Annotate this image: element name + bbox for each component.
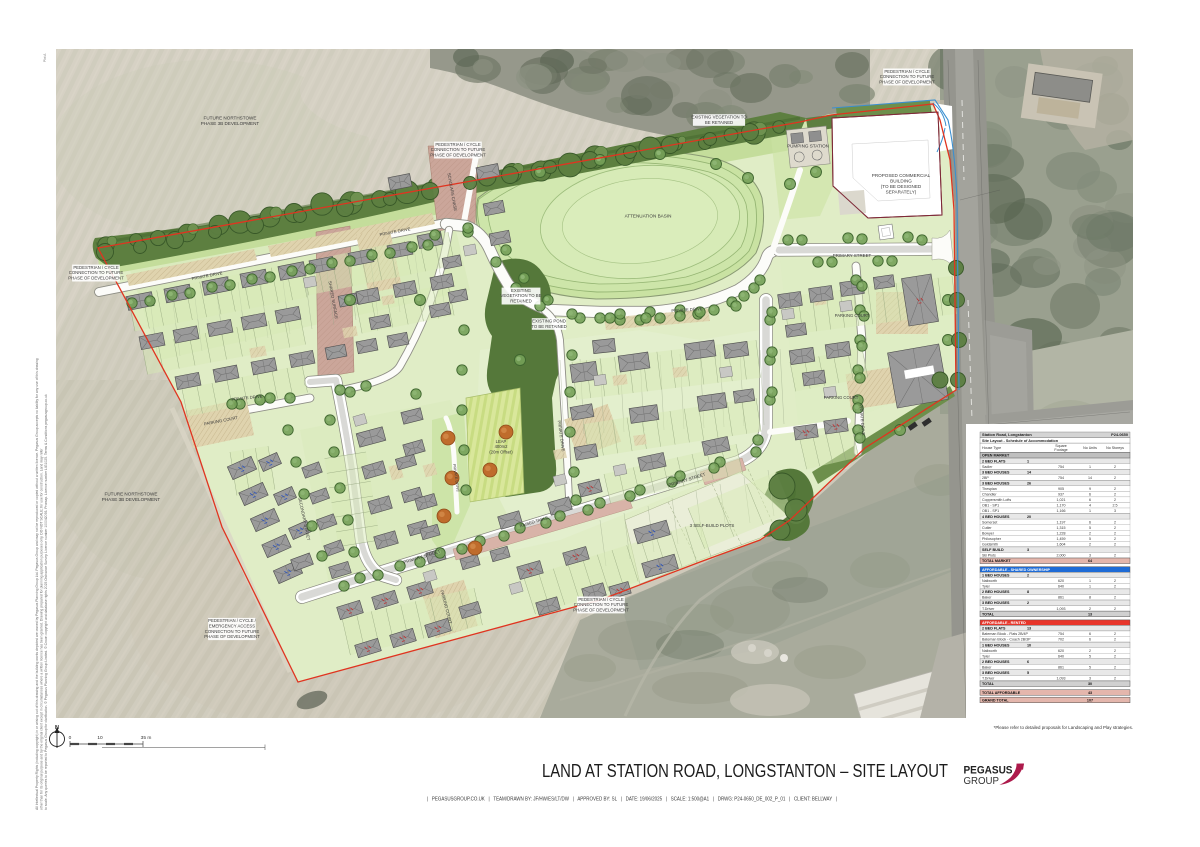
svg-text:GRAND TOTAL: GRAND TOTAL xyxy=(982,698,1009,702)
svg-text:CONNECTION TO FUTURE: CONNECTION TO FUTURE xyxy=(431,147,486,152)
svg-text:2: 2 xyxy=(1114,585,1116,589)
svg-text:RETAINED: RETAINED xyxy=(510,299,531,304)
svg-text:House Type: House Type xyxy=(982,446,1001,450)
svg-text:4: 4 xyxy=(1089,504,1091,508)
svg-text:PARKING COURT: PARKING COURT xyxy=(835,313,870,318)
svg-text:PRIMARY STREET: PRIMARY STREET xyxy=(833,253,872,258)
svg-text:*Please refer to detailed prop: *Please refer to detailed proposals for … xyxy=(994,725,1133,730)
svg-text:2: 2 xyxy=(1114,596,1116,600)
svg-text:Bateman Block - Flats 2B/4P: Bateman Block - Flats 2B/4P xyxy=(982,632,1029,636)
svg-text:PHASE OF DEVELOPMENT: PHASE OF DEVELOPMENT xyxy=(68,276,124,281)
svg-text:Site Layout - Schedule of Acco: Site Layout - Schedule of Accommodation xyxy=(982,439,1059,443)
svg-text:Tyler: Tyler xyxy=(982,585,991,589)
svg-text:N: N xyxy=(55,725,59,731)
svg-text:PEDESTRIAN / CYCLE /: PEDESTRIAN / CYCLE / xyxy=(208,618,257,623)
svg-text:2: 2 xyxy=(1114,666,1116,670)
svg-text:6: 6 xyxy=(1027,660,1029,664)
svg-text:PEDESTRIAN / CYCLE: PEDESTRIAN / CYCLE xyxy=(435,142,481,147)
svg-text:ATTENUATION BASIN: ATTENUATION BASIN xyxy=(625,213,672,218)
svg-text:2: 2 xyxy=(1114,487,1116,491)
svg-text:PHASE 3B DEVELOPMENT: PHASE 3B DEVELOPMENT xyxy=(201,121,260,126)
svg-text:Plot A: Plot A xyxy=(43,53,47,62)
svg-text:107: 107 xyxy=(1087,698,1093,702)
svg-text:1,604: 1,604 xyxy=(1057,543,1066,547)
svg-text:1: 1 xyxy=(1027,459,1029,463)
svg-text:EXISTING VEGETATION TO: EXISTING VEGETATION TO xyxy=(691,115,747,120)
svg-text:PHASE OF DEVELOPMENT: PHASE OF DEVELOPMENT xyxy=(573,608,629,613)
svg-text:6: 6 xyxy=(1089,520,1091,524)
svg-text:2: 2 xyxy=(1114,649,1116,653)
svg-text:Baker: Baker xyxy=(982,666,992,670)
svg-text:Cutler: Cutler xyxy=(982,526,992,530)
svg-text:13: 13 xyxy=(1088,612,1092,616)
svg-text:905: 905 xyxy=(1058,487,1064,491)
svg-text:PUMPING STATION: PUMPING STATION xyxy=(787,143,829,148)
svg-text:TO BE RETAINED: TO BE RETAINED xyxy=(531,324,566,329)
svg-text:2: 2 xyxy=(1114,531,1116,535)
svg-text:2: 2 xyxy=(1114,537,1116,541)
svg-text:| PEGASUSGROUP.CO.UK | T: | PEGASUSGROUP.CO.UK | TEAM/DRAWN BY: JF… xyxy=(427,797,837,803)
svg-text:8: 8 xyxy=(1027,590,1029,594)
svg-text:PHASE OF DEVELOPMENT: PHASE OF DEVELOPMENT xyxy=(879,80,935,85)
svg-text:2: 2 xyxy=(1114,654,1116,658)
svg-text:OB1 - SP1: OB1 - SP1 xyxy=(982,509,999,513)
svg-text:CONNECTION TO FUTURE: CONNECTION TO FUTURE xyxy=(69,270,124,275)
svg-text:2: 2 xyxy=(1114,465,1116,469)
svg-text:3 BED HOUSES: 3 BED HOUSES xyxy=(982,671,1010,675)
svg-text:2: 2 xyxy=(1114,493,1116,497)
svg-text:All Intellectual Property Righ: All Intellectual Property Rights (includ… xyxy=(35,358,39,810)
svg-text:PEDESTRIAN / CYCLE: PEDESTRIAN / CYCLE xyxy=(73,265,119,270)
svg-text:5: 5 xyxy=(1089,666,1091,670)
svg-text:2: 2 xyxy=(1114,638,1116,642)
svg-text:2BP: 2BP xyxy=(982,476,989,480)
svg-text:2: 2 xyxy=(1089,607,1091,611)
svg-text:640: 640 xyxy=(1058,654,1064,658)
svg-text:1 BED HOUSES: 1 BED HOUSES xyxy=(982,643,1010,647)
svg-text:9: 9 xyxy=(1089,487,1091,491)
svg-text:FUTURE NORTHSTOWE: FUTURE NORTHSTOWE xyxy=(105,492,158,497)
svg-text:Philosopher: Philosopher xyxy=(982,537,1002,541)
svg-text:2,000: 2,000 xyxy=(1057,554,1066,558)
svg-text:No Storeys: No Storeys xyxy=(1106,446,1124,450)
svg-text:Chandler: Chandler xyxy=(982,493,997,497)
svg-text:Coppersmith Lofts: Coppersmith Lofts xyxy=(982,498,1011,502)
svg-text:620: 620 xyxy=(1058,649,1064,653)
svg-text:1,093: 1,093 xyxy=(1057,607,1066,611)
svg-text:2: 2 xyxy=(1114,498,1116,502)
svg-text:754: 754 xyxy=(1058,476,1064,480)
svg-text:Nailworth: Nailworth xyxy=(982,579,997,583)
svg-text:TOTAL: TOTAL xyxy=(982,612,995,616)
svg-text:AFFORDABLE - RENTED: AFFORDABLE - RENTED xyxy=(982,621,1026,625)
svg-text:Somerset: Somerset xyxy=(982,520,997,524)
svg-text:BUILDING: BUILDING xyxy=(890,179,912,184)
svg-text:2: 2 xyxy=(1114,607,1116,611)
svg-text:2: 2 xyxy=(1089,543,1091,547)
svg-text:1,166: 1,166 xyxy=(1057,509,1066,513)
svg-text:EMERGENCY ACCESS: EMERGENCY ACCESS xyxy=(209,624,255,629)
svg-text:6: 6 xyxy=(1089,498,1091,502)
svg-text:861: 861 xyxy=(1058,666,1064,670)
svg-text:PHASE OF DEVELOPMENT: PHASE OF DEVELOPMENT xyxy=(204,634,260,639)
svg-text:Baker: Baker xyxy=(982,596,992,600)
svg-text:PARKING COURT: PARKING COURT xyxy=(824,395,859,400)
svg-text:1,459: 1,459 xyxy=(1057,537,1066,541)
svg-text:SB Plots: SB Plots xyxy=(982,554,996,558)
svg-text:T.Driver: T.Driver xyxy=(982,607,995,611)
svg-text:26: 26 xyxy=(1027,482,1031,486)
svg-text:10: 10 xyxy=(97,735,103,741)
svg-text:Bateman Block - Coach 2B/3P: Bateman Block - Coach 2B/3P xyxy=(982,638,1031,642)
svg-text:2: 2 xyxy=(1114,476,1116,480)
svg-text:861: 861 xyxy=(1058,596,1064,600)
svg-text:3: 3 xyxy=(1089,677,1091,681)
svg-text:702: 702 xyxy=(1058,638,1064,642)
svg-text:1: 1 xyxy=(1089,465,1091,469)
svg-text:CONNECTION TO FUTURE: CONNECTION TO FUTURE xyxy=(574,602,629,607)
svg-text:TOTAL: TOTAL xyxy=(982,682,995,686)
svg-text:OB1 - SP1: OB1 - SP1 xyxy=(982,504,999,508)
svg-text:754: 754 xyxy=(1058,465,1064,469)
svg-text:2: 2 xyxy=(1114,579,1116,583)
svg-text:937: 937 xyxy=(1058,493,1064,497)
svg-text:2: 2 xyxy=(1027,574,1029,578)
svg-text:PEDESTRIAN / CYCLE: PEDESTRIAN / CYCLE xyxy=(884,69,930,74)
svg-text:2: 2 xyxy=(1114,543,1116,547)
svg-text:1,170: 1,170 xyxy=(1057,504,1066,508)
svg-text:Sadler: Sadler xyxy=(982,465,993,469)
svg-text:LAND AT STATION ROAD, LONGSTAN: LAND AT STATION ROAD, LONGSTANTON – SITE… xyxy=(542,760,948,781)
svg-text:other than for its original pu: other than for its original purpose and … xyxy=(40,448,44,810)
svg-text:30: 30 xyxy=(1088,682,1092,686)
svg-text:2 BED FLATS: 2 BED FLATS xyxy=(982,459,1006,463)
svg-text:0: 0 xyxy=(69,735,72,741)
svg-text:3: 3 xyxy=(1089,554,1091,558)
svg-text:3: 3 xyxy=(1114,509,1116,513)
svg-text:14: 14 xyxy=(1088,476,1092,480)
svg-text:to scale. Any queries to be re: to scale. Any queries to be reported to … xyxy=(44,394,48,810)
svg-text:T.Driver: T.Driver xyxy=(982,677,995,681)
svg-text:2: 2 xyxy=(1114,632,1116,636)
svg-text:1: 1 xyxy=(1089,585,1091,589)
svg-text:640: 640 xyxy=(1058,585,1064,589)
svg-text:GROUP: GROUP xyxy=(964,776,1000,787)
svg-text:6: 6 xyxy=(1089,493,1091,497)
svg-text:6: 6 xyxy=(1089,632,1091,636)
svg-text:VEGETATION TO BE: VEGETATION TO BE xyxy=(501,293,542,298)
svg-text:(20m Offset): (20m Offset) xyxy=(489,449,513,454)
svg-text:1,315: 1,315 xyxy=(1057,526,1066,530)
svg-text:Goldsmith: Goldsmith xyxy=(982,543,998,547)
svg-text:OPEN MARKET: OPEN MARKET xyxy=(982,454,1010,458)
svg-text:2: 2 xyxy=(1089,649,1091,653)
svg-text:AFFORDABLE - SHARED OWNERSHIP: AFFORDABLE - SHARED OWNERSHIP xyxy=(982,568,1051,572)
svg-text:Thespian: Thespian xyxy=(982,487,997,491)
svg-text:PEDESTRIAN / CYCLE: PEDESTRIAN / CYCLE xyxy=(578,597,624,602)
svg-text:3 SELF-BUILD PLOTS: 3 SELF-BUILD PLOTS xyxy=(690,523,735,528)
svg-text:43: 43 xyxy=(1088,691,1092,695)
svg-text:10: 10 xyxy=(1027,643,1031,647)
svg-text:BE RETAINED: BE RETAINED xyxy=(705,120,733,125)
svg-text:1: 1 xyxy=(1089,509,1091,513)
svg-text:3 BED HOUSES: 3 BED HOUSES xyxy=(982,482,1010,486)
svg-text:EXISTING: EXISTING xyxy=(511,288,532,293)
svg-text:2: 2 xyxy=(1114,520,1116,524)
svg-text:13: 13 xyxy=(1027,627,1031,631)
svg-text:CONNECTION TO FUTURE: CONNECTION TO FUTURE xyxy=(205,629,260,634)
svg-text:EXISTING POND: EXISTING POND xyxy=(532,319,566,324)
svg-text:CONNECTION TO FUTURE: CONNECTION TO FUTURE xyxy=(880,74,935,79)
svg-text:8: 8 xyxy=(1089,596,1091,600)
svg-text:1,228: 1,228 xyxy=(1057,531,1066,535)
svg-text:SEPARATELY): SEPARATELY) xyxy=(886,190,917,195)
svg-text:2.5: 2.5 xyxy=(1113,504,1118,508)
svg-text:2 BED HOUSES: 2 BED HOUSES xyxy=(982,590,1010,594)
svg-text:1,021: 1,021 xyxy=(1057,498,1066,502)
svg-text:Bowyer: Bowyer xyxy=(982,531,995,535)
svg-text:Nailworth: Nailworth xyxy=(982,649,997,653)
svg-text:PROPOSED COMMERCIAL: PROPOSED COMMERCIAL xyxy=(872,173,931,178)
svg-text:No Units: No Units xyxy=(1083,446,1097,450)
svg-text:20: 20 xyxy=(1027,515,1031,519)
svg-text:5: 5 xyxy=(1089,537,1091,541)
svg-text:Station Road, Longstanton: Station Road, Longstanton xyxy=(982,432,1032,437)
svg-text:2: 2 xyxy=(1027,601,1029,605)
svg-text:5: 5 xyxy=(1089,654,1091,658)
svg-text:2 BED HOUSES: 2 BED HOUSES xyxy=(982,660,1010,664)
svg-text:1 BED HOUSES: 1 BED HOUSES xyxy=(982,574,1010,578)
svg-text:3 BED HOUSES: 3 BED HOUSES xyxy=(982,601,1010,605)
svg-text:1,197: 1,197 xyxy=(1057,520,1066,524)
svg-text:2: 2 xyxy=(1114,554,1116,558)
svg-text:2: 2 xyxy=(1114,526,1116,530)
svg-text:5: 5 xyxy=(1089,526,1091,530)
svg-text:(TO BE DESIGNED: (TO BE DESIGNED xyxy=(881,184,922,189)
svg-text:2: 2 xyxy=(1114,677,1116,681)
svg-text:754: 754 xyxy=(1058,632,1064,636)
svg-text:Tyler: Tyler xyxy=(982,654,991,658)
svg-text:PHASE 3B DEVELOPMENT: PHASE 3B DEVELOPMENT xyxy=(102,497,161,502)
svg-text:620: 620 xyxy=(1058,579,1064,583)
svg-text:TOTAL AFFORDABLE: TOTAL AFFORDABLE xyxy=(982,691,1021,695)
svg-text:1,093: 1,093 xyxy=(1057,677,1066,681)
svg-text:TOTAL MARKET: TOTAL MARKET xyxy=(982,559,1011,563)
svg-text:2: 2 xyxy=(1089,531,1091,535)
svg-text:PHASE OF DEVELOPMENT: PHASE OF DEVELOPMENT xyxy=(430,153,486,158)
svg-text:3 BED HOUSES: 3 BED HOUSES xyxy=(982,470,1010,474)
svg-text:4 BED HOUSES: 4 BED HOUSES xyxy=(982,515,1010,519)
svg-text:1: 1 xyxy=(1089,579,1091,583)
svg-text:6: 6 xyxy=(1089,638,1091,642)
svg-text:SELF BUILD: SELF BUILD xyxy=(982,548,1004,552)
svg-text:FUTURE NORTHSTOWE: FUTURE NORTHSTOWE xyxy=(204,116,257,121)
svg-text:PEGASUS: PEGASUS xyxy=(964,765,1013,777)
svg-text:5: 5 xyxy=(1027,671,1029,675)
svg-text:35 m: 35 m xyxy=(141,735,152,741)
svg-text:Footage: Footage xyxy=(1054,448,1067,452)
svg-text:P24-0650: P24-0650 xyxy=(1111,432,1128,437)
svg-text:2 BED FLATS: 2 BED FLATS xyxy=(982,627,1006,631)
svg-text:3: 3 xyxy=(1027,548,1029,552)
